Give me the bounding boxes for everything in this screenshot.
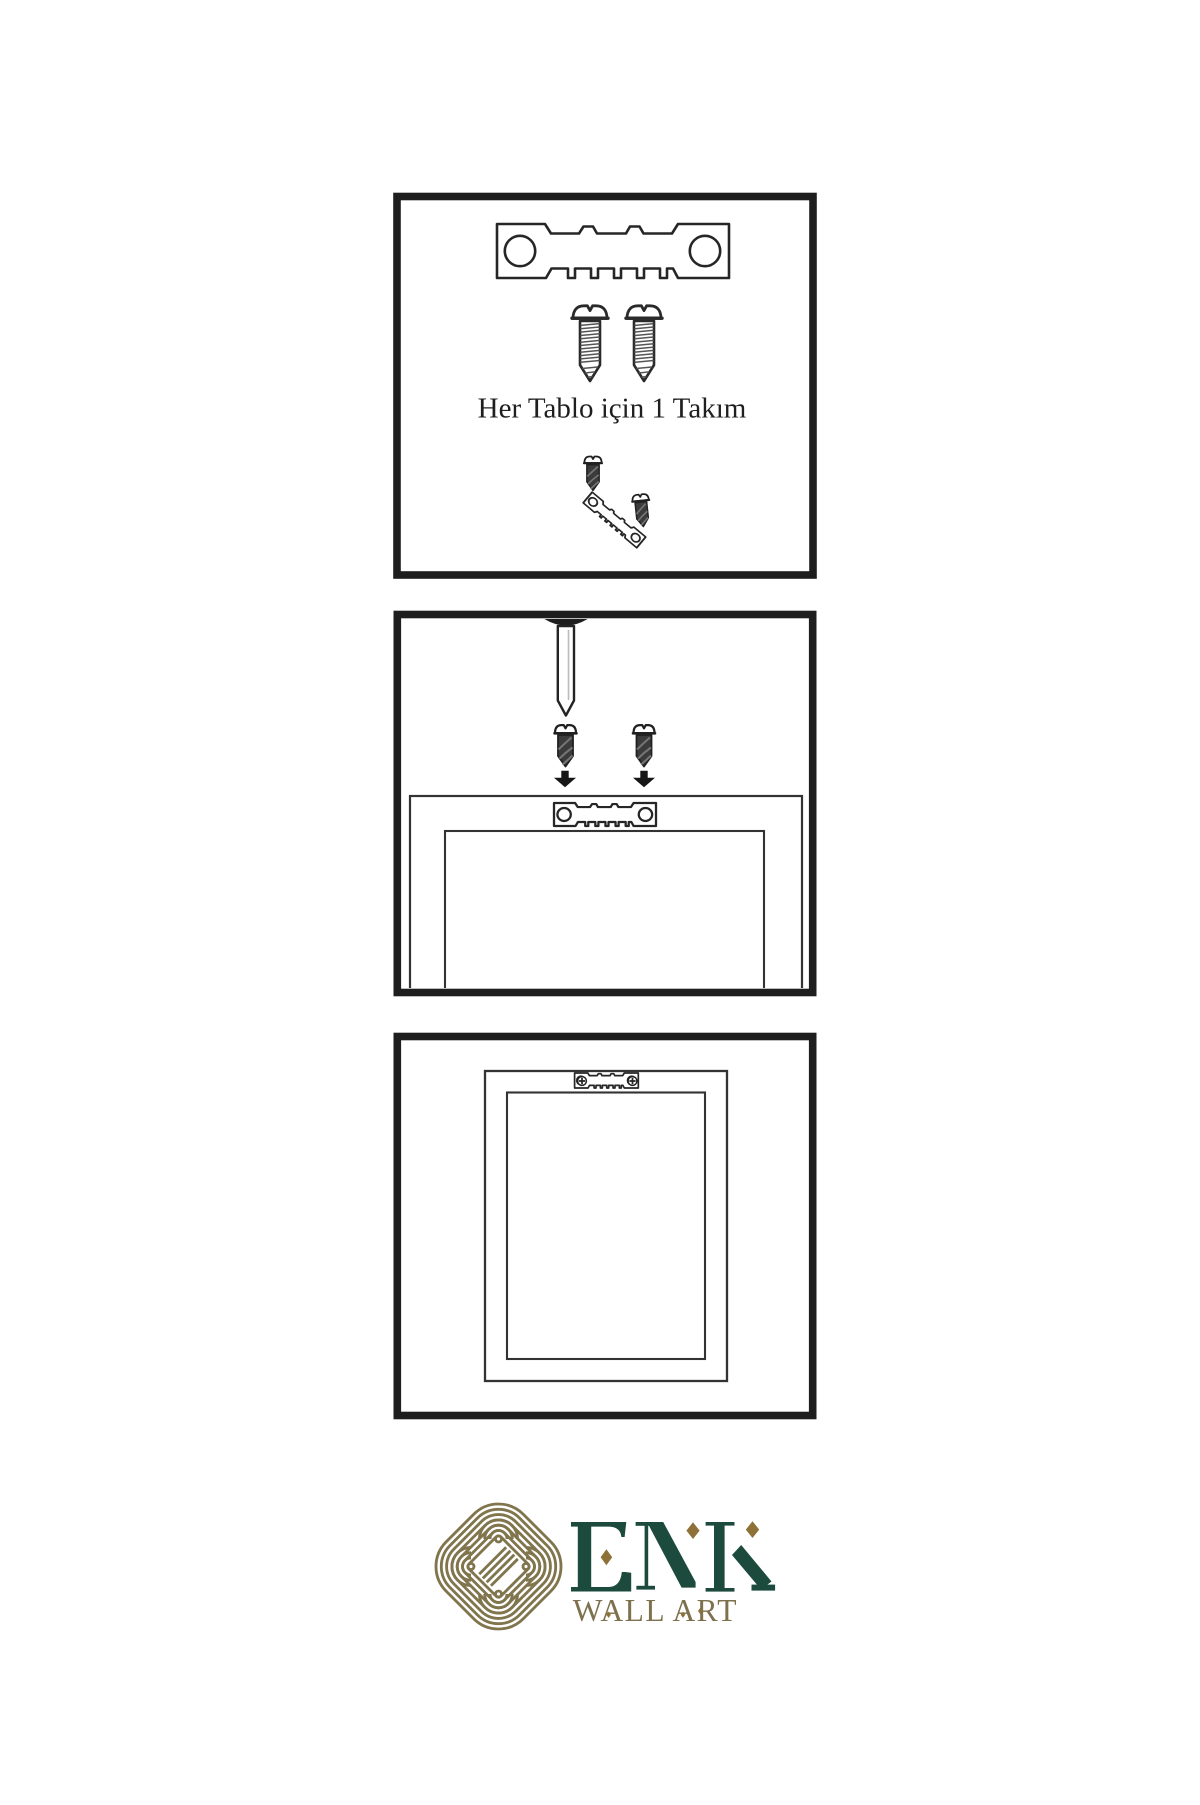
- svg-text:WALL ART: WALL ART: [573, 1593, 738, 1628]
- svg-text:Her Tablo için 1 Takım: Her Tablo için 1 Takım: [478, 393, 747, 425]
